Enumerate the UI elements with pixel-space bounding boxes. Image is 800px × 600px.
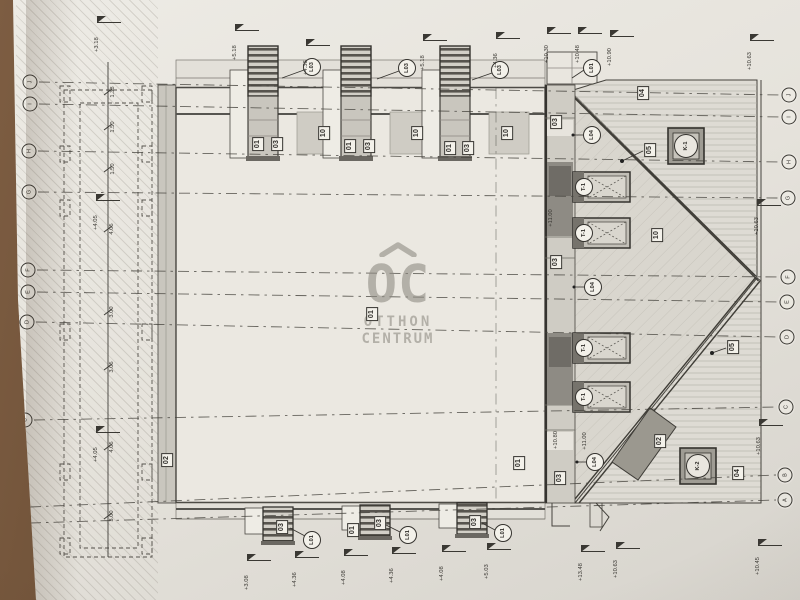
- code-label-10: 10: [501, 126, 513, 140]
- grid-bubble-right-C: C: [779, 400, 794, 415]
- grid-bubble-left-C: C: [18, 413, 33, 428]
- level-flag-icon: [442, 551, 466, 552]
- level-flag-icon: [487, 549, 511, 550]
- code-label-01: 01: [513, 456, 525, 470]
- grid-bubble-right-I: I: [782, 110, 797, 125]
- tag-L01: L01: [494, 524, 512, 542]
- level-flag-icon: [96, 432, 120, 433]
- grid-bubble-right-H: H: [782, 155, 797, 170]
- tag-T-1: T-1: [575, 339, 593, 357]
- tag-L04: L04: [583, 126, 601, 144]
- tag-T-1: T-1: [575, 224, 593, 242]
- level-flag-icon: [757, 205, 781, 206]
- tag-T-1: T-1: [575, 178, 593, 196]
- tag-L01: L01: [303, 531, 321, 549]
- elevation-value: +4.05: [93, 447, 99, 462]
- code-label-03: 03: [462, 141, 474, 155]
- code-label-01: 01: [444, 141, 456, 155]
- elevation-value: +5.18: [232, 45, 238, 60]
- code-label-02: 02: [654, 434, 666, 448]
- dimension-text: 3.00: [109, 510, 115, 521]
- elevation-value: +4.36: [389, 568, 395, 583]
- elevation-value: +5.03: [484, 564, 490, 579]
- grid-bubble-left-E: E: [21, 285, 36, 300]
- code-label-04: 04: [637, 86, 649, 100]
- elevation-value: +4.36: [493, 53, 499, 68]
- elevation-value: +10.30: [544, 45, 550, 63]
- dimension-text: 4.05: [109, 223, 115, 234]
- dimension-text: +10.80: [553, 431, 559, 449]
- grid-bubble-left-A: A: [14, 516, 29, 531]
- tag-L01: L01: [583, 59, 601, 77]
- grid-bubble-left-B: B: [14, 500, 29, 515]
- elevation-value: +10.45: [755, 557, 761, 575]
- code-label-03: 03: [554, 471, 566, 485]
- code-label-10: 10: [411, 126, 423, 140]
- elevation-value: +10.63: [613, 560, 619, 578]
- elevation-value: +4.08: [341, 570, 347, 585]
- grid-bubble-left-H: H: [22, 144, 37, 159]
- level-flag-icon: [547, 33, 571, 34]
- grid-bubble-left-I: I: [23, 97, 38, 112]
- code-label-04: 04: [732, 466, 744, 480]
- level-flag-icon: [578, 33, 602, 34]
- elevation-value: +5.18: [420, 55, 426, 70]
- level-flag-icon: [306, 45, 330, 46]
- tag-L04: L04: [584, 278, 602, 296]
- code-label-05: 05: [727, 340, 739, 354]
- grid-bubble-right-F: F: [781, 270, 796, 285]
- level-flag-icon: [295, 557, 319, 558]
- code-label-02: 02: [161, 453, 173, 467]
- grid-bubble-right-B: B: [778, 468, 793, 483]
- dimension-text: +11.00: [582, 432, 588, 449]
- level-flag-icon: [235, 30, 259, 31]
- level-flag-icon: [344, 555, 368, 556]
- grid-bubble-right-A: A: [778, 493, 793, 508]
- level-flag-icon: [610, 36, 634, 37]
- elevation-value: +10.90: [607, 48, 613, 66]
- elevation-value: +10.48: [575, 45, 581, 63]
- code-label-10: 10: [318, 126, 330, 140]
- elevation-value: +4.08: [439, 566, 445, 581]
- code-label-10: 10: [651, 228, 663, 242]
- level-flag-icon: [581, 551, 605, 552]
- level-flag-icon: [616, 548, 640, 549]
- dimension-text: 1.50: [110, 163, 116, 174]
- tag-L03: L03: [398, 59, 416, 77]
- grid-bubble-right-E: E: [780, 295, 795, 310]
- code-label-03: 03: [469, 515, 481, 529]
- grid-bubble-right-G: G: [781, 191, 796, 206]
- grid-bubble-left-G: G: [22, 185, 37, 200]
- grid-bubble-left-J: J: [23, 75, 38, 90]
- level-flag-icon: [247, 560, 271, 561]
- level-flag-icon: [759, 425, 783, 426]
- level-flag-icon: [97, 22, 121, 23]
- level-flag-icon: [496, 38, 520, 39]
- elevation-value: +10.63: [747, 52, 753, 70]
- grid-bubble-right-D: D: [780, 330, 795, 345]
- code-label-01: 01: [347, 523, 359, 537]
- level-flag-icon: [96, 200, 120, 201]
- tag-L01: L01: [399, 526, 417, 544]
- code-label-03: 03: [550, 255, 562, 269]
- tag-T-1: T-1: [575, 388, 593, 406]
- dimension-text: 3.05: [109, 361, 115, 372]
- code-label-03: 03: [374, 516, 386, 530]
- tag-L04: L04: [586, 453, 604, 471]
- level-flag-icon: [750, 40, 774, 41]
- dimension-text: +11.00: [548, 209, 554, 226]
- elevation-value: +10.63: [756, 437, 762, 455]
- dimension-text: 4.05: [109, 441, 115, 452]
- tag-K-2: K-2: [689, 457, 707, 475]
- code-label-03: 03: [271, 137, 283, 151]
- tag-K-1: K-1: [677, 137, 695, 155]
- dimension-text: 1.50: [110, 121, 116, 132]
- grid-bubble-right-J: J: [782, 88, 797, 103]
- elevation-value: +3.08: [244, 575, 250, 590]
- level-flag-icon: [423, 40, 447, 41]
- level-flag-icon: [758, 545, 782, 546]
- code-label-01: 01: [344, 139, 356, 153]
- elevation-value: +3.18: [94, 37, 100, 52]
- elevation-value: +4.36: [292, 572, 298, 587]
- code-label-05: 05: [644, 143, 656, 157]
- elevation-value: +10.63: [754, 217, 760, 235]
- drawing-sheet: OC OTTHON CENTRUM 0103100103100103100405…: [0, 0, 800, 600]
- grid-bubble-left-D: D: [20, 315, 35, 330]
- dimension-text: 1.38: [110, 86, 116, 97]
- dimension-text: 3.00: [109, 306, 115, 317]
- code-label-03: 03: [550, 115, 562, 129]
- elevation-value: +4.36: [303, 60, 309, 75]
- elevation-value: +4.05: [93, 215, 99, 230]
- photo-of-drawing: OC OTTHON CENTRUM 0103100103100103100405…: [0, 0, 800, 600]
- grid-bubble-left-F: F: [21, 263, 36, 278]
- code-label-03: 03: [363, 139, 375, 153]
- code-label-01: 01: [366, 307, 378, 321]
- code-label-01: 01: [252, 137, 264, 151]
- level-flag-icon: [392, 553, 416, 554]
- labels-layer: 0103100103100103100405031003010201030205…: [0, 0, 800, 600]
- code-label-03: 03: [276, 520, 288, 534]
- elevation-value: +13.48: [578, 563, 584, 581]
